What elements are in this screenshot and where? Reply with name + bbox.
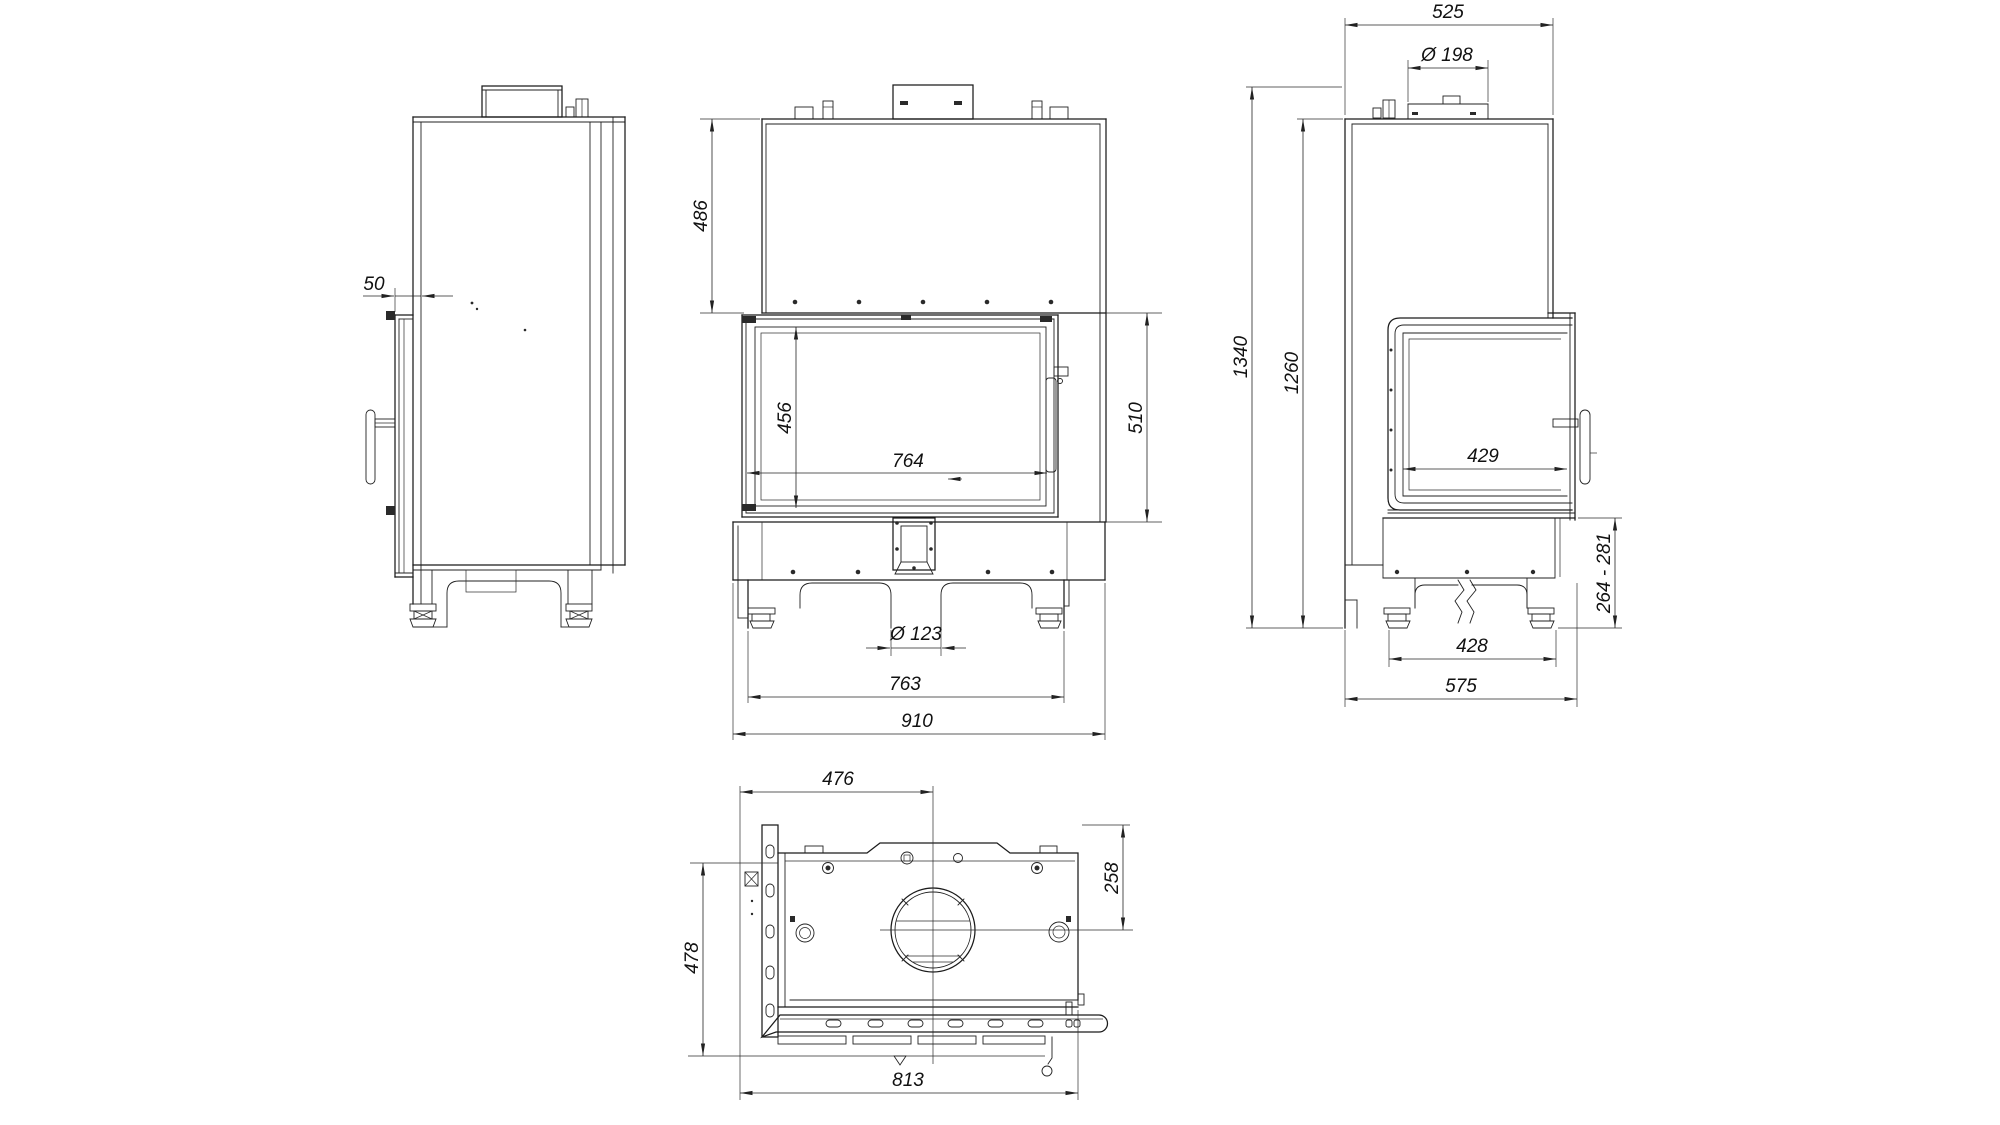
dim-flue-diameter: Ø 198 [1408, 45, 1488, 102]
flue-opening [880, 786, 1133, 1064]
front-outline [733, 85, 1106, 628]
view-side-right: 525 Ø 198 1340 1260 429 264 - 281 [1231, 2, 1622, 707]
dim-label-763: 763 [889, 674, 921, 695]
dim-label-50: 50 [363, 274, 385, 295]
view-top: 476 258 478 813 [682, 769, 1133, 1100]
dim-body-width: 813 [740, 1010, 1078, 1100]
latch-hook [1042, 1037, 1052, 1076]
side-right-outline [1345, 96, 1597, 628]
dim-door-height: 510 [1105, 313, 1162, 522]
dim-plinth-height: 264 - 281 [1558, 518, 1622, 628]
dim-label-264-281: 264 - 281 [1594, 533, 1615, 614]
dim-overall-width: 910 [733, 583, 1105, 740]
leveling-foot-a [1384, 608, 1410, 628]
hinge-mark-bottom [386, 506, 395, 515]
anchor-plate [745, 872, 758, 886]
dim-side-glass-width: 429 [1403, 446, 1567, 469]
side-left-outline [366, 86, 625, 627]
top-outline [688, 786, 1133, 1076]
dim-body-height: 1260 [1282, 119, 1343, 628]
dim-air-inlet: Ø 123 [866, 624, 966, 656]
dim-body-depth: 478 [682, 863, 778, 1056]
dim-hood-height: 486 [691, 119, 760, 313]
dim-label-1260: 1260 [1282, 351, 1303, 394]
dim-label-910: 910 [901, 711, 933, 732]
center-marker [894, 1056, 906, 1065]
dim-label-476: 476 [822, 769, 854, 790]
technical-drawing-canvas: 50 [0, 0, 2000, 1125]
dim-label-1340: 1340 [1231, 335, 1252, 378]
dim-label-525: 525 [1432, 2, 1464, 23]
dim-label-510: 510 [1126, 402, 1147, 434]
dim-label-428: 428 [1456, 636, 1488, 657]
dim-label-123: Ø 123 [889, 624, 942, 645]
view-front: 486 456 764 510 Ø 123 763 [691, 85, 1162, 740]
dim-label-258: 258 [1102, 862, 1123, 895]
dim-label-456: 456 [775, 402, 796, 434]
air-inlet-duct [893, 518, 935, 574]
door-handle-side [366, 410, 395, 484]
leveling-foot-back [566, 604, 592, 627]
dim-label-764: 764 [892, 451, 924, 472]
leveling-foot-right [1036, 608, 1062, 628]
dim-label-478: 478 [682, 942, 703, 974]
hinge-mark-top [386, 311, 395, 320]
dim-label-198: Ø 198 [1420, 45, 1473, 66]
dim-feet-distance: 428 [1389, 630, 1556, 667]
dim-label-429: 429 [1467, 446, 1499, 467]
dim-glass-height: 456 [775, 327, 796, 508]
front-glass [755, 327, 1046, 506]
view-side-left: 50 [363, 86, 625, 627]
dim-label-575: 575 [1445, 676, 1477, 697]
door-handle-front [1046, 367, 1068, 472]
dim-flue-offset-side: 476 [740, 769, 933, 1100]
dim-door-protrusion: 50 [363, 274, 453, 312]
side-glass-door [1388, 313, 1597, 520]
leveling-foot-front [410, 604, 436, 627]
leveling-foot-left [748, 608, 775, 628]
dim-glass-width: 764 [747, 451, 1047, 473]
dim-label-813: 813 [892, 1070, 924, 1091]
leveling-foot-b [1528, 608, 1554, 628]
dim-label-486: 486 [691, 200, 712, 232]
dim-flue-offset-back: 258 [1082, 825, 1130, 930]
drawing-sheet: 50 [0, 0, 2000, 1125]
